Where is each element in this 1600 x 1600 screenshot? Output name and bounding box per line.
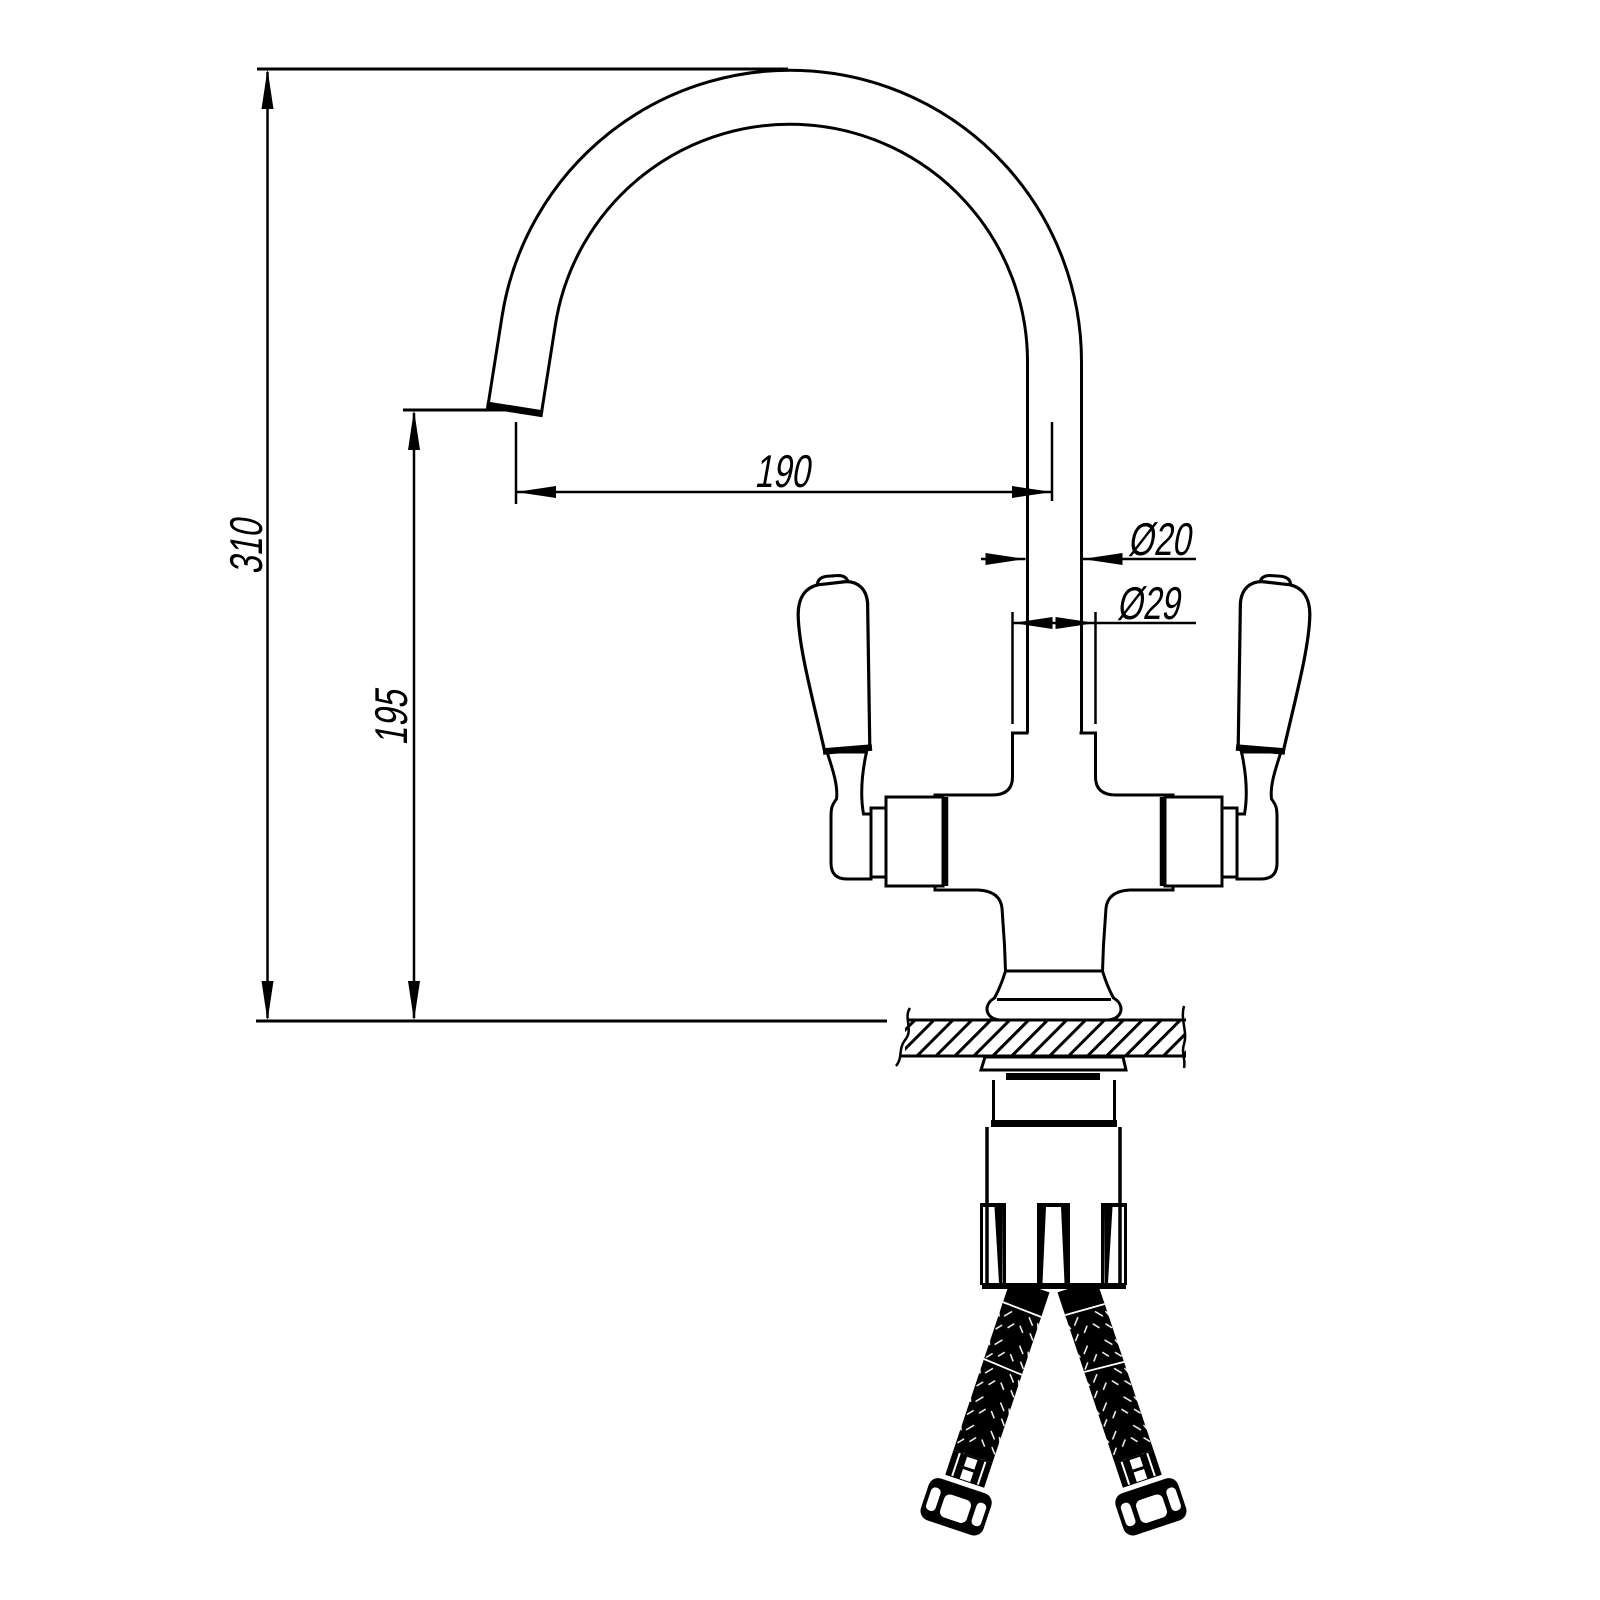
svg-text:Ø29: Ø29 bbox=[1115, 577, 1187, 629]
svg-text:195: 195 bbox=[365, 683, 417, 747]
svg-text:Ø20: Ø20 bbox=[1126, 513, 1198, 565]
svg-text:190: 190 bbox=[752, 445, 816, 497]
svg-text:310: 310 bbox=[220, 512, 272, 576]
